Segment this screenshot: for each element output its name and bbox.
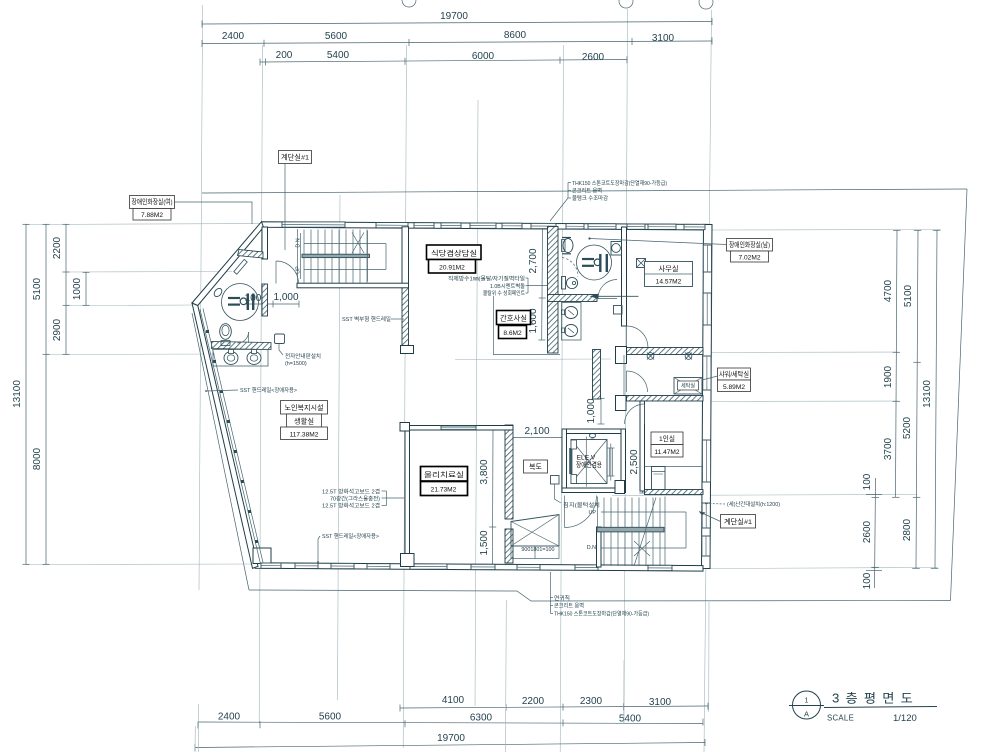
svg-text:간호사실: 간호사실 bbox=[500, 314, 527, 323]
svg-text:샤워/세탁실: 샤워/세탁실 bbox=[719, 369, 749, 378]
svg-text:3100: 3100 bbox=[652, 33, 675, 44]
svg-text:직제방수1㎜(몰탈/자기질벽타일: 직제방수1㎜(몰탈/자기질벽타일 bbox=[448, 275, 525, 283]
svg-text:5600: 5600 bbox=[325, 31, 348, 42]
svg-text:A: A bbox=[804, 710, 809, 719]
svg-text:노인복지시설: 노인복지시설 bbox=[285, 403, 324, 412]
svg-text:3100: 3100 bbox=[649, 697, 672, 708]
svg-text:1인실: 1인실 bbox=[659, 434, 675, 443]
svg-text:세탁실: 세탁실 bbox=[681, 382, 695, 390]
svg-text:식당겸상담실: 식당겸상담실 bbox=[431, 249, 477, 258]
svg-text:4100: 4100 bbox=[442, 695, 465, 706]
svg-text:5400: 5400 bbox=[327, 50, 350, 61]
svg-text:2400: 2400 bbox=[222, 31, 245, 42]
svg-text:1: 1 bbox=[805, 698, 809, 705]
svg-text:UP: UP bbox=[589, 510, 597, 516]
svg-text:7.02M2: 7.02M2 bbox=[739, 255, 761, 262]
svg-text:12.5T 방화석고보드 2겹: 12.5T 방화석고보드 2겹 bbox=[322, 488, 380, 496]
svg-text:SST 벽부형 핸드레일: SST 벽부형 핸드레일 bbox=[342, 315, 391, 323]
svg-text:5200: 5200 bbox=[902, 416, 913, 439]
svg-text:2600: 2600 bbox=[862, 520, 873, 543]
svg-text:3 층 평 면 도: 3 층 평 면 도 bbox=[832, 692, 914, 706]
svg-text:8600: 8600 bbox=[504, 30, 527, 41]
svg-text:8000: 8000 bbox=[32, 447, 43, 470]
svg-text:2200: 2200 bbox=[52, 236, 63, 259]
svg-text:침지(물턱설치: 침지(물턱설치 bbox=[563, 501, 600, 509]
svg-text:20.91M2: 20.91M2 bbox=[439, 265, 465, 272]
svg-text:(h=1500): (h=1500) bbox=[285, 361, 307, 367]
svg-text:복도: 복도 bbox=[529, 463, 542, 471]
svg-text:D.N: D.N bbox=[587, 545, 596, 551]
svg-text:계단실#1: 계단실#1 bbox=[724, 517, 752, 526]
svg-text:117.38M2: 117.38M2 bbox=[290, 432, 319, 439]
svg-text:3,800: 3,800 bbox=[479, 459, 490, 484]
svg-text:5.89M2: 5.89M2 bbox=[723, 384, 745, 391]
svg-text:계단실#1: 계단실#1 bbox=[281, 153, 309, 162]
svg-text:사무실: 사무실 bbox=[659, 264, 679, 273]
svg-text:3700: 3700 bbox=[883, 437, 894, 460]
svg-text:6300: 6300 bbox=[470, 713, 493, 724]
svg-text:2,500: 2,500 bbox=[629, 449, 640, 474]
svg-text:13100: 13100 bbox=[12, 380, 23, 408]
svg-text:1/120: 1/120 bbox=[893, 713, 917, 724]
svg-text:2300: 2300 bbox=[580, 696, 603, 707]
svg-text:4700: 4700 bbox=[883, 279, 894, 302]
svg-text:SCALE: SCALE bbox=[827, 714, 854, 723]
svg-text:장애인화장실(여): 장애인화장실(여) bbox=[132, 197, 173, 206]
svg-text:1900: 1900 bbox=[883, 365, 894, 388]
svg-text:D N: D N bbox=[296, 238, 302, 247]
svg-text:7.88M2: 7.88M2 bbox=[141, 212, 163, 219]
svg-text:1,000: 1,000 bbox=[273, 292, 298, 303]
svg-text:ELE.V: ELE.V bbox=[577, 455, 596, 462]
svg-text:(세)난간대설치(h:1200): (세)난간대설치(h:1200) bbox=[727, 500, 780, 508]
svg-text:콘크리트 옹벽: 콘크리트 옹벽 bbox=[554, 602, 584, 610]
svg-text:2600: 2600 bbox=[582, 52, 605, 63]
svg-text:1.0B시멘트벽돌: 1.0B시멘트벽돌 bbox=[490, 282, 525, 290]
svg-text:생활실: 생활실 bbox=[294, 417, 314, 426]
svg-text:장애인화장실(남): 장애인화장실(남) bbox=[729, 240, 770, 249]
svg-text:연귀칙: 연귀칙 bbox=[554, 594, 570, 602]
svg-text:몰탈위 수 성회페인트: 몰탈위 수 성회페인트 bbox=[483, 289, 525, 297]
svg-text:2900: 2900 bbox=[52, 318, 63, 341]
svg-text:THK150 스톤코트도장마감(단열재90-가등급): THK150 스톤코트도장마감(단열재90-가등급) bbox=[554, 610, 649, 618]
svg-text:12.5T 방화석고보드 2겹: 12.5T 방화석고보드 2겹 bbox=[322, 502, 380, 510]
svg-text:5100: 5100 bbox=[903, 284, 914, 307]
svg-text:2800: 2800 bbox=[902, 518, 913, 541]
svg-text:70광간(그라스울충전): 70광간(그라스울충전) bbox=[330, 495, 380, 503]
svg-text:5100: 5100 bbox=[32, 277, 43, 300]
svg-text:1000: 1000 bbox=[72, 277, 83, 300]
svg-text:전자안내판설치: 전자안내판설치 bbox=[285, 352, 321, 360]
svg-text:5400: 5400 bbox=[619, 714, 642, 725]
svg-text:5600: 5600 bbox=[319, 712, 342, 723]
svg-text:19700: 19700 bbox=[437, 733, 465, 744]
svg-text:2200: 2200 bbox=[522, 696, 545, 707]
svg-text:8.6M2: 8.6M2 bbox=[503, 330, 522, 337]
svg-text:13100: 13100 bbox=[922, 380, 933, 408]
svg-text:2400: 2400 bbox=[218, 712, 241, 723]
svg-text:11.47M2: 11.47M2 bbox=[654, 449, 680, 456]
svg-text:100: 100 bbox=[862, 473, 873, 490]
svg-text:6000: 6000 bbox=[472, 51, 495, 62]
svg-text:9001801=100: 9001801=100 bbox=[521, 547, 554, 553]
svg-text:200: 200 bbox=[276, 50, 293, 61]
svg-text:21.73M2: 21.73M2 bbox=[431, 487, 457, 494]
svg-text:1,000: 1,000 bbox=[586, 398, 597, 423]
svg-text:SST 핸드레일<장애자용>: SST 핸드레일<장애자용> bbox=[240, 386, 297, 394]
svg-text:SST 핸드레일<장애자용>: SST 핸드레일<장애자용> bbox=[322, 532, 379, 540]
svg-text:장애인겸용: 장애인겸용 bbox=[576, 460, 602, 469]
svg-text:2,700: 2,700 bbox=[528, 248, 539, 273]
svg-text:콘크리트 옹벽: 콘크리트 옹벽 bbox=[572, 187, 602, 195]
svg-text:100: 100 bbox=[862, 572, 873, 589]
svg-text:UP: UP bbox=[296, 266, 302, 274]
svg-text:THK150 스톤코트도장마감(단열재90-가등급): THK150 스톤코트도장마감(단열재90-가등급) bbox=[572, 179, 667, 187]
svg-text:2,100: 2,100 bbox=[524, 426, 549, 437]
svg-text:19700: 19700 bbox=[440, 11, 468, 22]
svg-text:물리치료실: 물리치료실 bbox=[424, 470, 464, 479]
svg-text:14.57M2: 14.57M2 bbox=[656, 279, 682, 286]
svg-text:1,500: 1,500 bbox=[479, 530, 490, 555]
svg-text:물탱크 수조마감: 물탱크 수조마감 bbox=[572, 194, 608, 202]
